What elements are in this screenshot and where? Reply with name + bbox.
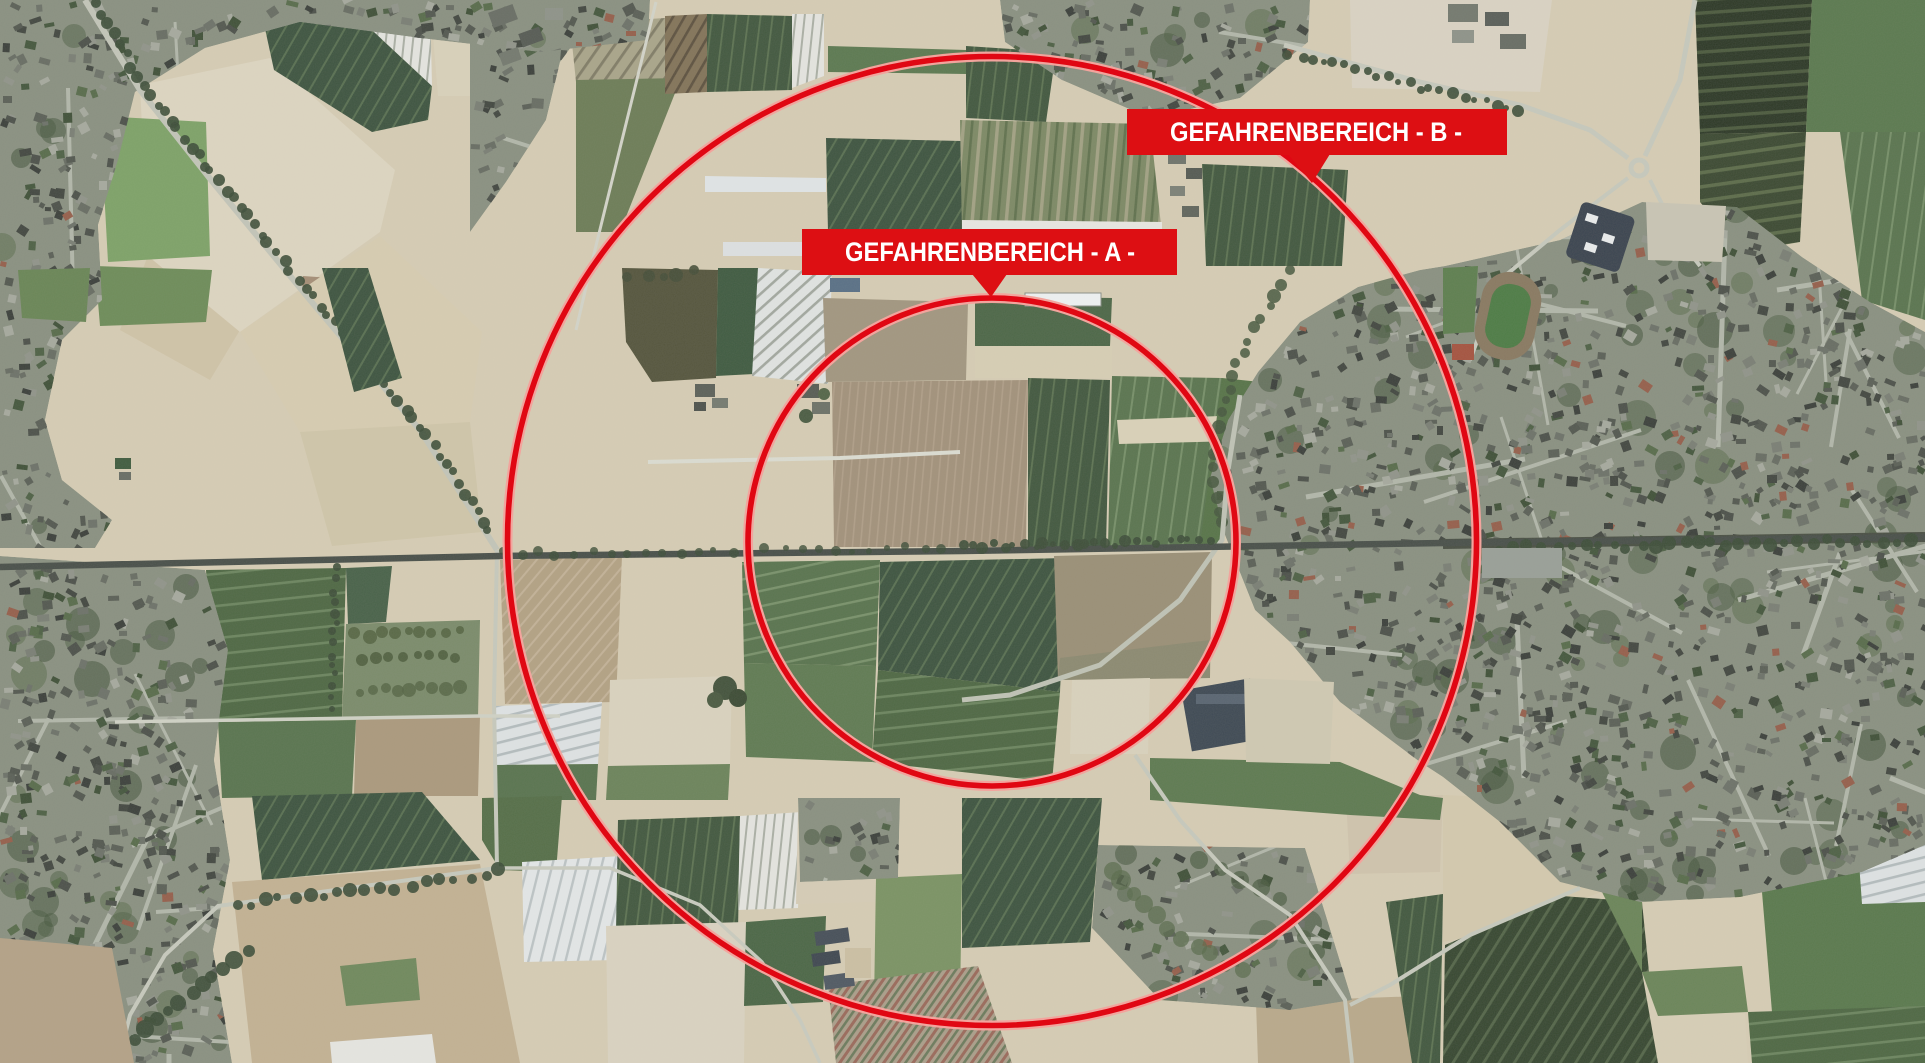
svg-text:GEFAHRENBEREICH - B -: GEFAHRENBEREICH - B - [1170, 117, 1462, 147]
svg-text:GEFAHRENBEREICH - A -: GEFAHRENBEREICH - A - [845, 237, 1135, 267]
